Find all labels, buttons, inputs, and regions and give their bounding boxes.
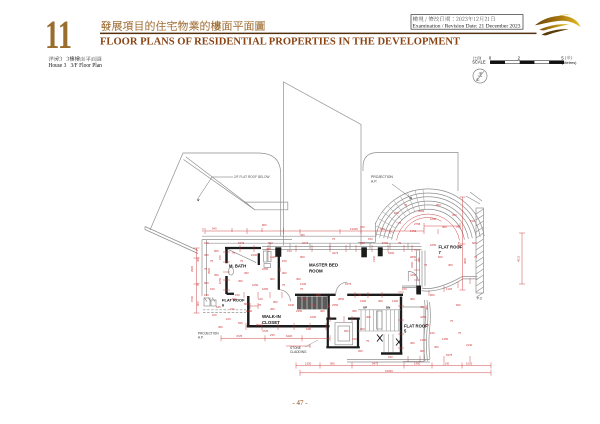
svg-text:150: 150	[402, 287, 407, 291]
svg-text:235: 235	[270, 333, 275, 337]
svg-text:Examination / Revision Date: 2: Examination / Revision Date: 21 December…	[413, 23, 521, 29]
svg-text:1650: 1650	[262, 287, 269, 291]
svg-text:75: 75	[450, 319, 454, 323]
svg-text:2350: 2350	[332, 303, 339, 307]
svg-text:75: 75	[458, 331, 462, 335]
svg-text:75: 75	[240, 259, 244, 263]
svg-text:75: 75	[398, 241, 402, 245]
svg-text:1125: 1125	[270, 255, 276, 259]
svg-text:150: 150	[430, 331, 435, 335]
svg-text:75: 75	[358, 293, 362, 297]
svg-text:3682: 3682	[418, 209, 425, 213]
svg-text:800: 800	[244, 302, 249, 306]
svg-text:150: 150	[282, 259, 287, 263]
svg-text:1200: 1200	[300, 282, 307, 286]
svg-text:75: 75	[404, 203, 408, 207]
svg-text:4450: 4450	[420, 315, 427, 319]
svg-text:450: 450	[434, 345, 439, 349]
svg-text:P.3: P.3	[477, 297, 482, 301]
svg-text:625: 625	[216, 305, 221, 309]
svg-text:450: 450	[214, 273, 219, 277]
svg-text:(Metres): (Metres)	[562, 60, 577, 65]
svg-text:1050: 1050	[252, 283, 259, 287]
svg-text:11: 11	[45, 12, 72, 57]
svg-text:150: 150	[302, 297, 307, 301]
svg-text:75: 75	[196, 282, 200, 286]
svg-text:0: 0	[489, 55, 492, 60]
svg-text:1290: 1290	[246, 309, 253, 313]
svg-text:900: 900	[214, 249, 219, 253]
svg-text:ROOM: ROOM	[309, 269, 323, 274]
svg-text:75: 75	[456, 225, 460, 229]
svg-text:1050: 1050	[430, 243, 437, 247]
svg-text:A.P.: A.P.	[198, 336, 204, 340]
svg-text:450: 450	[358, 349, 363, 353]
svg-text:900: 900	[436, 203, 441, 207]
svg-text:House 3 3/F Floor Plan: House 3 3/F Floor Plan	[48, 63, 102, 69]
svg-text:FLOOR PLANS OF RESIDENTIAL PRO: FLOOR PLANS OF RESIDENTIAL PROPERTIES IN…	[100, 37, 460, 48]
svg-text:2860: 2860	[338, 297, 345, 301]
svg-text:WALK-IN: WALK-IN	[262, 314, 281, 319]
svg-text:100: 100	[212, 313, 217, 317]
svg-text:75: 75	[332, 237, 336, 241]
svg-text:150: 150	[230, 307, 235, 311]
svg-text:900: 900	[420, 349, 425, 353]
svg-text:M. BATH: M. BATH	[229, 264, 246, 269]
svg-text:150: 150	[394, 211, 399, 215]
svg-text:150: 150	[316, 293, 321, 297]
svg-text:900: 900	[282, 271, 287, 275]
svg-text:1300: 1300	[392, 299, 399, 303]
svg-text:PROJECTION: PROJECTION	[371, 175, 393, 179]
svg-text:1500: 1500	[190, 295, 194, 302]
svg-text:2350: 2350	[296, 309, 303, 313]
svg-text:3473: 3473	[302, 241, 309, 245]
svg-text:75: 75	[366, 339, 370, 343]
svg-text:450: 450	[352, 309, 357, 313]
svg-text:75: 75	[424, 263, 428, 267]
svg-text:2250: 2250	[262, 267, 269, 271]
svg-text:950: 950	[330, 362, 335, 366]
svg-text:1350: 1350	[305, 362, 312, 366]
svg-text:FLAT ROOF: FLAT ROOF	[222, 298, 245, 303]
svg-text:4512: 4512	[517, 255, 521, 262]
svg-text:75: 75	[282, 283, 286, 287]
svg-text:900: 900	[300, 255, 305, 259]
svg-text:450: 450	[238, 279, 243, 283]
svg-text:5475: 5475	[446, 353, 453, 357]
svg-text:450: 450	[218, 325, 223, 329]
svg-text:3473: 3473	[332, 251, 339, 255]
svg-text:1450: 1450	[414, 362, 421, 366]
svg-text:1005: 1005	[466, 362, 473, 366]
svg-text:150: 150	[204, 293, 209, 297]
svg-text:3860: 3860	[463, 257, 467, 264]
svg-text:2860: 2860	[410, 255, 417, 259]
svg-text:2: 2	[518, 55, 521, 60]
svg-text:1930: 1930	[288, 303, 295, 307]
svg-text:940: 940	[204, 241, 209, 245]
svg-text:450: 450	[448, 263, 453, 267]
svg-text:150: 150	[210, 287, 215, 291]
svg-text:1450: 1450	[442, 337, 449, 341]
svg-text:150: 150	[360, 241, 365, 245]
svg-text:2/F FLAT ROOF BELOW: 2/F FLAT ROOF BELOW	[234, 175, 269, 179]
svg-text:450: 450	[296, 277, 301, 281]
svg-text:625: 625	[238, 321, 243, 325]
svg-text:940: 940	[212, 227, 217, 231]
svg-text:450: 450	[196, 257, 200, 262]
svg-text:2460: 2460	[410, 261, 414, 268]
svg-text:900: 900	[204, 281, 209, 285]
svg-text:6: 6	[222, 303, 225, 308]
svg-text:2130: 2130	[466, 343, 473, 347]
svg-text:5460: 5460	[388, 251, 395, 255]
svg-text:150: 150	[306, 327, 311, 331]
svg-text:5475: 5475	[372, 362, 379, 366]
svg-text:2900: 2900	[207, 267, 211, 274]
svg-text:75: 75	[474, 255, 478, 259]
svg-text:1000: 1000	[251, 253, 258, 257]
svg-text:1300: 1300	[360, 299, 367, 303]
svg-text:UP: UP	[363, 306, 367, 310]
svg-text:150: 150	[235, 293, 240, 297]
svg-text:900: 900	[344, 329, 349, 333]
svg-text:950: 950	[256, 323, 261, 327]
svg-text:- 47 -: - 47 -	[292, 399, 308, 407]
svg-text:150: 150	[368, 237, 373, 241]
svg-text:460: 460	[320, 309, 325, 313]
svg-text:1462: 1462	[410, 229, 417, 233]
svg-text:75: 75	[398, 221, 402, 225]
svg-text:13345: 13345	[350, 227, 358, 231]
svg-text:A.P.: A.P.	[371, 180, 377, 184]
svg-text:150: 150	[218, 255, 222, 260]
svg-text:450: 450	[244, 271, 249, 275]
svg-text:SCALE: SCALE	[472, 60, 486, 65]
svg-text:75: 75	[232, 251, 236, 255]
svg-text:450: 450	[266, 247, 271, 251]
svg-text:450: 450	[410, 341, 415, 345]
svg-text:5: 5	[404, 329, 407, 334]
svg-text:75: 75	[312, 303, 316, 307]
svg-text:450: 450	[378, 299, 383, 303]
svg-text:150: 150	[360, 225, 365, 229]
svg-text:1000: 1000	[310, 315, 317, 319]
svg-text:CLOSET: CLOSET	[262, 320, 280, 325]
svg-text:450: 450	[420, 305, 425, 309]
svg-text:150: 150	[417, 257, 421, 262]
svg-text:450: 450	[366, 315, 371, 319]
svg-text:900: 900	[270, 277, 275, 281]
svg-text:4150: 4150	[410, 273, 417, 277]
svg-text:600: 600	[430, 293, 435, 297]
svg-text:150: 150	[287, 249, 292, 253]
svg-text:900: 900	[327, 303, 331, 308]
svg-text:150: 150	[470, 219, 475, 223]
svg-text:100: 100	[226, 317, 231, 321]
svg-text:450: 450	[270, 307, 275, 311]
svg-text:450: 450	[204, 253, 209, 257]
svg-text:100: 100	[258, 297, 263, 301]
svg-text:6420: 6420	[286, 334, 293, 338]
svg-text:1575: 1575	[238, 241, 245, 245]
svg-text:640: 640	[380, 227, 385, 231]
svg-text:900: 900	[196, 301, 200, 306]
svg-text:4725: 4725	[262, 329, 269, 333]
svg-text:450: 450	[452, 213, 457, 217]
svg-text:FLAT ROOF: FLAT ROOF	[439, 245, 463, 250]
svg-text:2758: 2758	[414, 222, 421, 226]
svg-text:MASTER BED: MASTER BED	[309, 263, 338, 268]
svg-text:15260: 15260	[385, 369, 393, 373]
svg-text:2130: 2130	[443, 362, 450, 366]
svg-text:1125: 1125	[446, 287, 452, 291]
svg-text:600: 600	[472, 241, 477, 245]
svg-text:4725: 4725	[236, 334, 243, 338]
svg-text:DN: DN	[386, 306, 390, 310]
svg-text:75: 75	[204, 267, 208, 271]
svg-text:1050: 1050	[218, 277, 222, 284]
svg-text:900: 900	[360, 327, 365, 331]
svg-text:FLAT ROOF: FLAT ROOF	[404, 324, 428, 329]
svg-text:1460: 1460	[420, 338, 427, 342]
svg-text:600: 600	[456, 303, 461, 307]
svg-text:CLADDING: CLADDING	[290, 350, 307, 354]
svg-text:950: 950	[273, 300, 278, 304]
svg-text:1575: 1575	[345, 282, 352, 286]
svg-text:450: 450	[425, 305, 429, 310]
svg-text:5460: 5460	[382, 241, 389, 245]
svg-text:150: 150	[388, 355, 393, 359]
svg-text:900: 900	[268, 241, 273, 245]
svg-text:1050: 1050	[430, 217, 437, 221]
svg-text:450: 450	[442, 225, 447, 229]
svg-text:600: 600	[438, 255, 443, 259]
svg-text:800: 800	[262, 223, 267, 227]
svg-text:2160: 2160	[372, 255, 376, 262]
svg-text:450: 450	[300, 233, 305, 237]
svg-text:450: 450	[410, 297, 415, 301]
svg-text:75: 75	[210, 259, 214, 263]
svg-text:75: 75	[300, 287, 304, 291]
svg-text:150: 150	[352, 337, 357, 341]
svg-text:75: 75	[258, 303, 262, 307]
svg-text:2900: 2900	[190, 265, 194, 272]
